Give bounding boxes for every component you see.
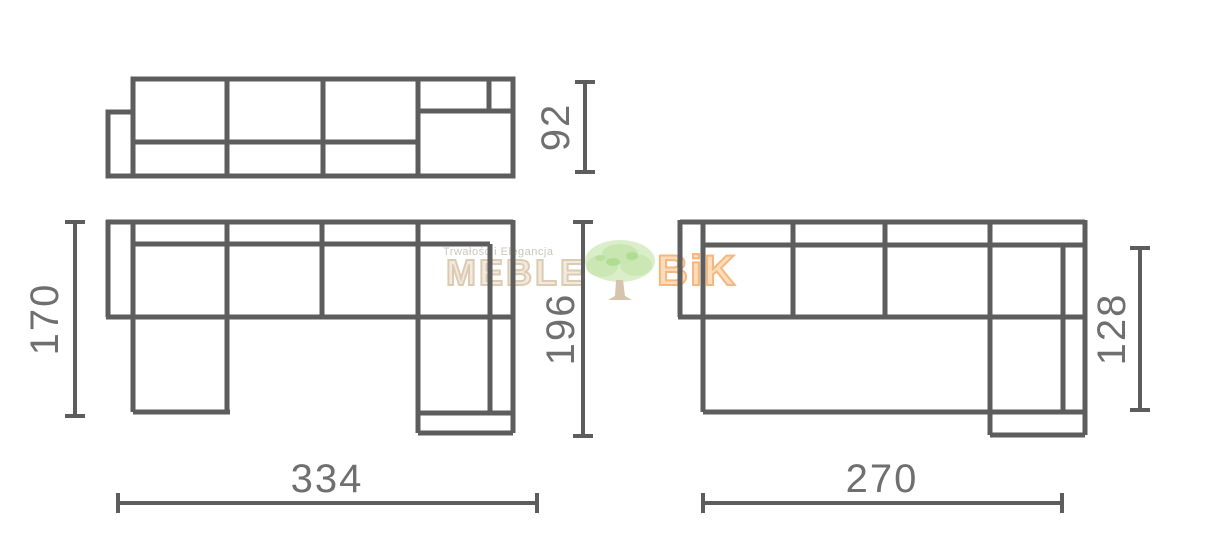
l-sofa-top-view-drawing: [678, 220, 1085, 435]
dimension-value-196: 196: [539, 269, 583, 389]
dimension-value-270: 270: [822, 457, 942, 501]
dimension-value-334: 334: [267, 457, 387, 501]
dimension-value-128: 128: [1090, 269, 1134, 389]
dimension-line-170: [65, 222, 85, 416]
technical-drawing-canvas: [0, 0, 1210, 549]
dimension-value-170: 170: [23, 259, 67, 379]
dimension-value-92: 92: [534, 87, 578, 167]
dimension-line-92: [575, 82, 595, 172]
sofa-dimension-diagram: Trwałość i Elegancja MEBLE BiK: [0, 0, 1210, 549]
u-sofa-top-view-drawing: [106, 220, 513, 433]
front-view-drawing: [108, 79, 513, 176]
